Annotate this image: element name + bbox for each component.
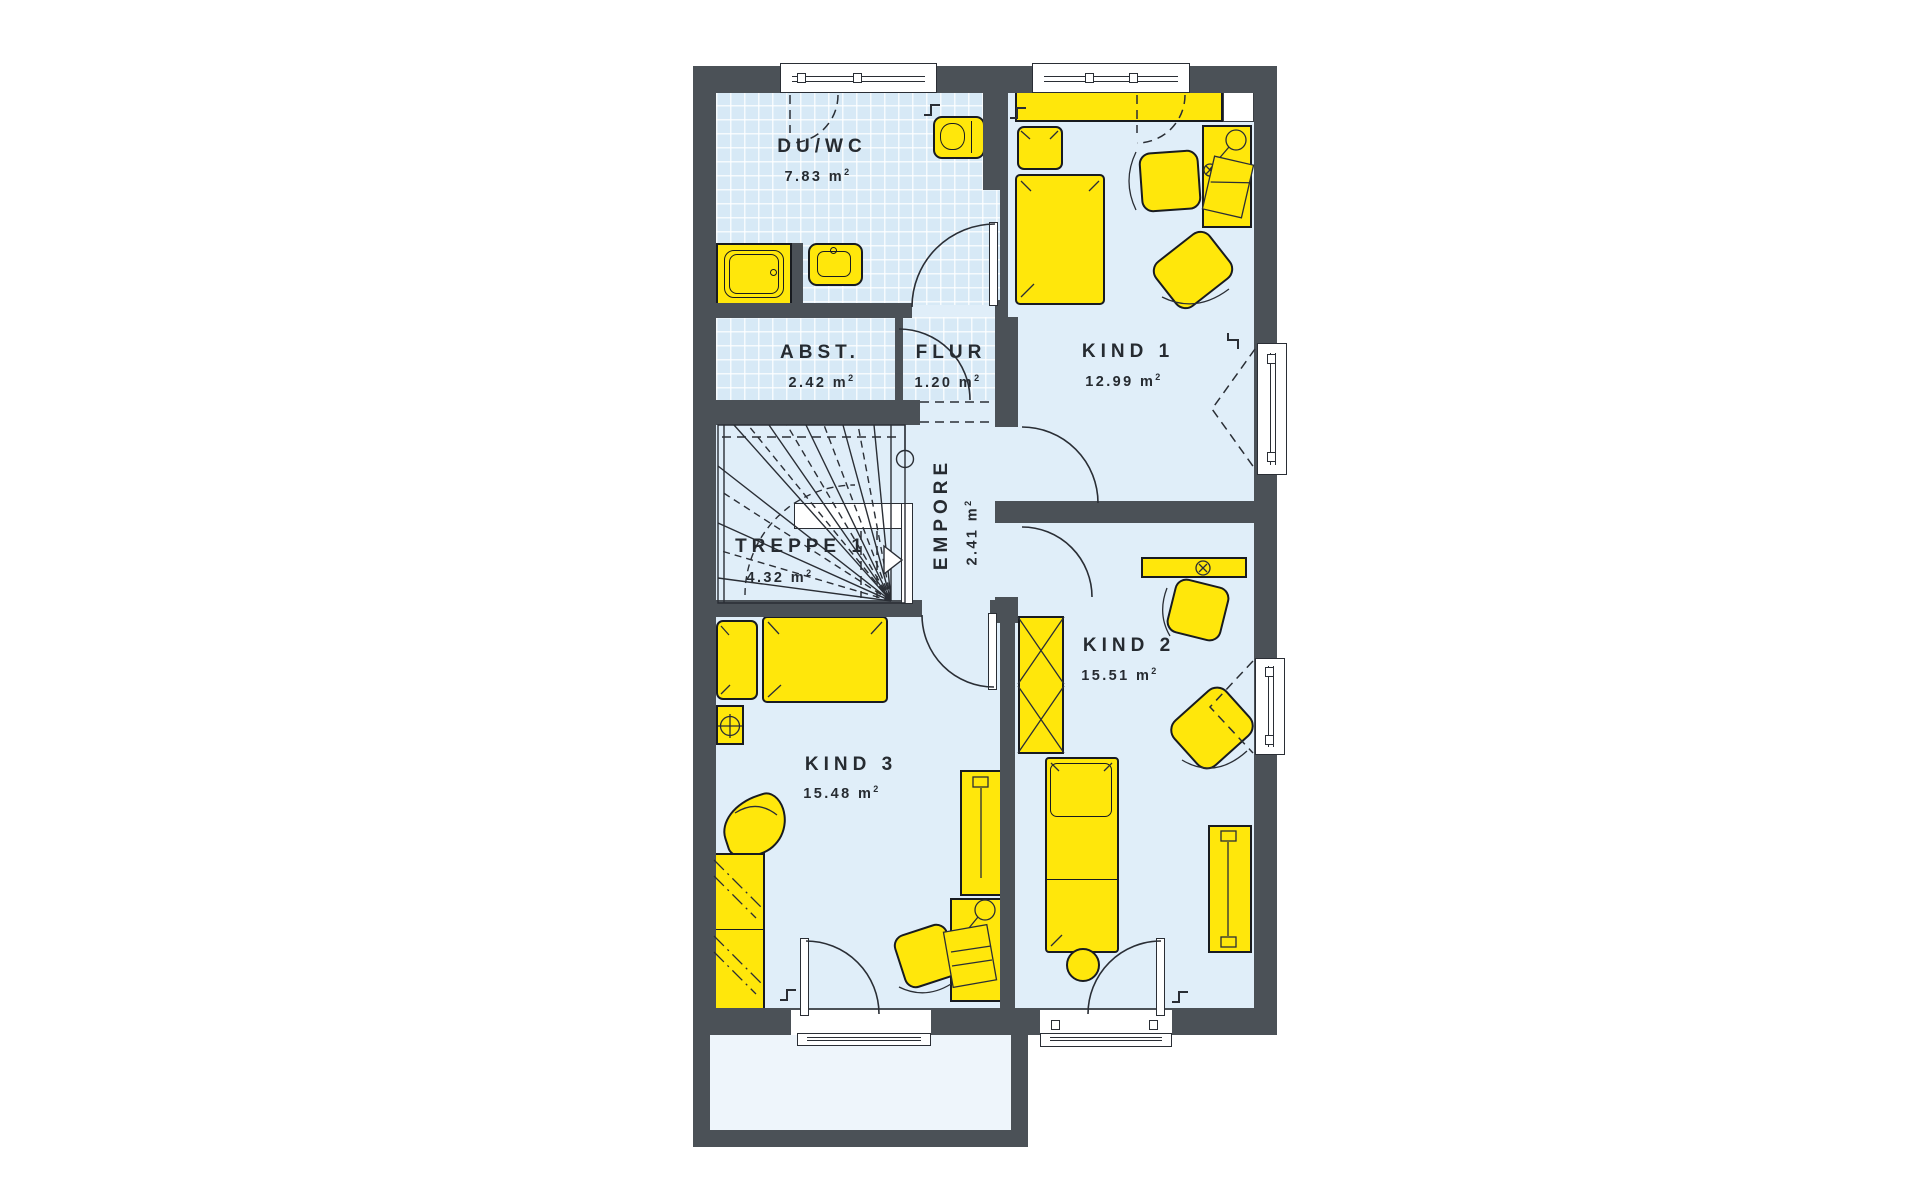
room-area-treppe: 4.32 m2 [747,568,814,586]
window-kind2-right [1255,658,1285,755]
wall-abst-flur [895,317,903,402]
window-kind1-right [1257,343,1287,475]
door-leaf-kind3 [988,613,997,690]
door-leaf-duwc [989,222,998,306]
sideboard-kind2 [1208,825,1252,953]
room-label-empore: EMPORE [931,458,953,570]
wall-empore-right [995,317,1018,427]
room-label-kind1: KIND 1 [1082,341,1174,363]
window-kind2-bottom [1040,1033,1172,1047]
desk-kind1 [1202,125,1252,228]
room-area-flur: 1.20 m2 [915,373,982,391]
wall-ext-right [1011,1035,1028,1147]
stair-landing-rail-h [794,503,910,529]
bed-kind2-pillow [1050,763,1112,817]
floor-extension [708,1033,1014,1134]
wall-duwc-kind1 [983,91,1008,190]
wall-kind1-kind2 [1018,501,1254,523]
room-label-flur: FLUR [916,342,987,364]
wall-abst-bottom [716,400,920,425]
room-label-treppe: TREPPE 1 [735,536,867,558]
room-label-kind2: KIND 2 [1083,635,1175,657]
room-label-kind3: KIND 3 [805,754,897,776]
sideboard-kind3 [960,770,1002,896]
desk-kind2 [1141,557,1247,578]
wall-ext-bottom [693,1130,1028,1147]
wall-left [693,66,716,1035]
nightstand-kind3 [716,705,744,745]
floor-plan-canvas: DU/WC 7.83 m2 ABST. 2.42 m2 FLUR 1.20 m2… [0,0,1920,1200]
sideboard-kind1 [1015,91,1223,122]
bed-kind1 [1015,174,1105,305]
door-leaf-kind2-exit [1156,938,1165,1016]
washbasin [808,243,863,286]
bed-kind2 [1045,757,1119,953]
room-area-abst: 2.42 m2 [789,373,856,391]
window-kind1-top [1032,63,1190,93]
room-area-kind2: 15.51 m2 [1081,666,1158,684]
desk-chair-kind1 [1138,149,1202,213]
room-area-empore: 2.41 m2 [963,499,982,566]
bed-kind3-pillow [716,620,758,700]
toilet [933,116,985,159]
opening-flur-empore [920,400,995,425]
window-kind3-bottom [797,1033,931,1046]
corner-niche [1223,91,1254,122]
wall-kind2-kind3 [1000,600,1015,1010]
wall-shower-divider [792,243,803,305]
door-opening-kind3-bottom [791,1010,931,1035]
room-area-kind1: 12.99 m2 [1085,372,1162,390]
wall-right [1254,66,1277,1035]
wall-duwc-bottom [716,303,912,318]
stool-kind2 [1066,948,1100,982]
window-duwc-top [780,63,937,93]
wall-kind3-top [716,600,922,617]
shower [716,243,792,305]
wardrobe-kind3 [710,853,765,1010]
bed-kind3 [762,616,888,703]
wall-duwc-kind1-thin [1000,190,1008,306]
desk-kind3 [950,898,1002,1002]
stair-landing-rail-v [901,503,913,604]
room-area-duwc: 7.83 m2 [785,167,852,185]
room-area-kind3: 15.48 m2 [803,784,880,802]
shower-drain [770,269,777,276]
wall-bottom [693,1008,1277,1035]
door-leaf-kind3-exit [800,938,809,1016]
bed-kind1-pillow [1017,126,1063,170]
wardrobe-kind2 [1018,616,1064,754]
room-label-duwc: DU/WC [777,136,866,158]
room-label-abst: ABST. [780,342,860,364]
wall-post-kind1-door [995,501,1018,523]
